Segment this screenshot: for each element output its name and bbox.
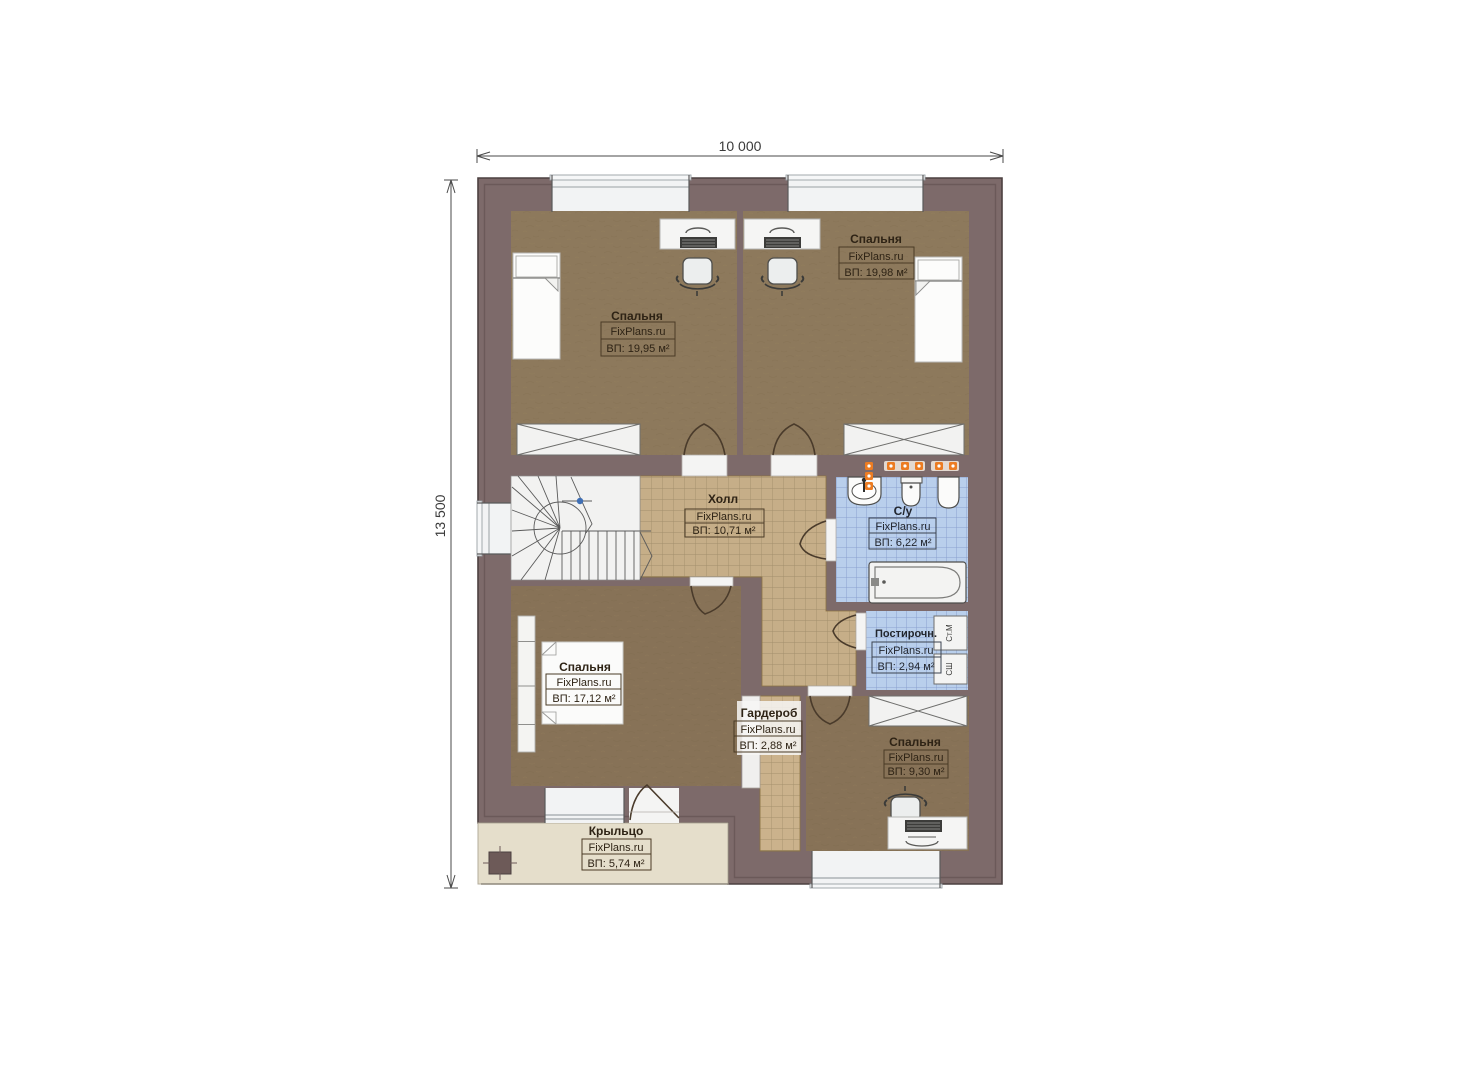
svg-text:FixPlans.ru: FixPlans.ru (556, 677, 611, 689)
svg-text:Ст.М: Ст.М (945, 624, 954, 642)
svg-text:Спальня: Спальня (559, 660, 611, 674)
svg-text:Постирочн.: Постирочн. (875, 628, 937, 640)
svg-text:Холл: Холл (708, 492, 738, 506)
svg-text:ВП: 19,95 м²: ВП: 19,95 м² (606, 343, 670, 355)
svg-text:FixPlans.ru: FixPlans.ru (878, 645, 933, 657)
svg-text:ВП: 19,98 м²: ВП: 19,98 м² (844, 267, 908, 279)
svg-text:ВП: 10,71 м²: ВП: 10,71 м² (692, 525, 756, 537)
svg-text:СШ: СШ (945, 662, 954, 675)
svg-text:FixPlans.ru: FixPlans.ru (696, 511, 751, 523)
svg-text:FixPlans.ru: FixPlans.ru (588, 842, 643, 854)
svg-text:Гардероб: Гардероб (741, 706, 798, 720)
svg-text:ВП: 6,22 м²: ВП: 6,22 м² (874, 537, 931, 549)
svg-text:Спальня: Спальня (889, 735, 941, 749)
svg-text:ВП: 17,12 м²: ВП: 17,12 м² (552, 693, 616, 705)
svg-text:Крыльцо: Крыльцо (589, 824, 644, 838)
svg-text:FixPlans.ru: FixPlans.ru (610, 326, 665, 338)
svg-text:Спальня: Спальня (611, 309, 663, 323)
svg-text:FixPlans.ru: FixPlans.ru (848, 251, 903, 263)
svg-text:С/у: С/у (894, 504, 913, 518)
svg-text:FixPlans.ru: FixPlans.ru (888, 752, 943, 764)
svg-text:13 500: 13 500 (432, 494, 448, 537)
svg-text:Спальня: Спальня (850, 232, 902, 246)
svg-text:FixPlans.ru: FixPlans.ru (740, 724, 795, 736)
svg-text:ВП: 2,94 м²: ВП: 2,94 м² (877, 661, 934, 673)
svg-text:10 000: 10 000 (719, 138, 762, 154)
svg-text:ВП: 2,88 м²: ВП: 2,88 м² (739, 740, 796, 752)
svg-text:ВП: 9,30 м²: ВП: 9,30 м² (887, 766, 944, 778)
svg-text:ВП: 5,74 м²: ВП: 5,74 м² (587, 858, 644, 870)
svg-text:FixPlans.ru: FixPlans.ru (875, 521, 930, 533)
